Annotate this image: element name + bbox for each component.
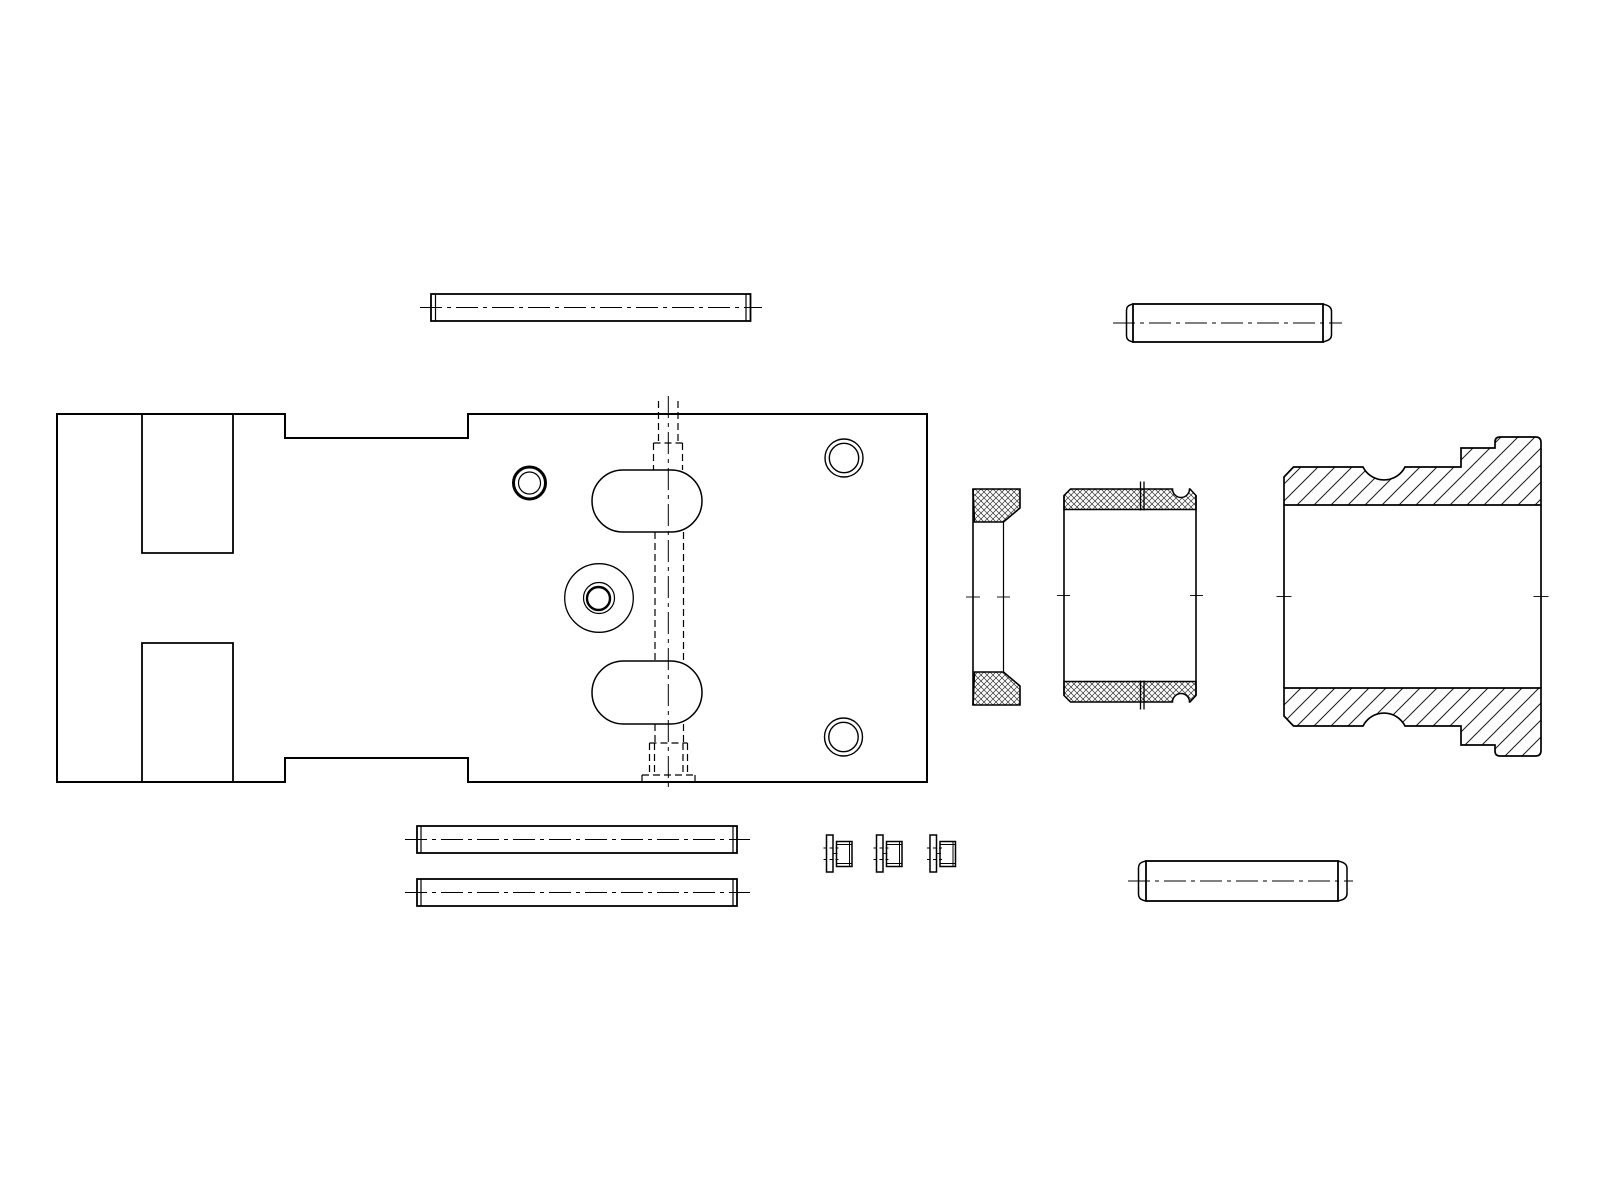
base-plate: [57, 396, 927, 791]
drawing-viewport: [0, 0, 1600, 1200]
plate-outline: [57, 414, 927, 782]
jaw-slot-upper: [142, 414, 233, 553]
section-hatch-lower: [973, 672, 1020, 705]
section-hatch-lower: [1284, 688, 1541, 756]
guide-rod-bottom-1: [405, 826, 750, 853]
guide-rod-top: [420, 294, 762, 321]
slot-obround-lower: [592, 661, 702, 724]
split-bushing-section: [1057, 482, 1203, 710]
threaded-hole-inner: [519, 472, 541, 494]
counterbore-outer: [565, 564, 634, 633]
retaining-washer-section: [966, 489, 1020, 705]
set-screw-2: [874, 835, 903, 872]
dowel-pin-bottom: [1128, 861, 1353, 901]
bolt-hole-outer: [825, 439, 863, 477]
counterbore-thread: [587, 587, 610, 610]
guide-rod-bottom-2: [405, 879, 750, 906]
section-hatch-lower: [1064, 682, 1196, 703]
screw-flange: [877, 835, 884, 872]
bolt-hole-inner: [829, 722, 858, 751]
set-screw-3: [927, 835, 956, 872]
jaw-slot-lower: [142, 643, 233, 782]
section-hatch-upper: [1284, 437, 1541, 505]
slot-obround-upper: [592, 470, 702, 532]
bolt-hole-inner: [829, 443, 858, 472]
screw-flange: [827, 835, 834, 872]
section-hatch-upper: [973, 489, 1020, 522]
dowel-pin-top: [1113, 304, 1342, 342]
bolt-hole-outer: [825, 718, 863, 756]
section-hatch-upper: [1064, 489, 1196, 510]
clamp-body-section: [1277, 437, 1549, 756]
screw-flange: [930, 835, 937, 872]
drawing-canvas: [0, 0, 1600, 1200]
set-screw-1: [824, 835, 853, 872]
